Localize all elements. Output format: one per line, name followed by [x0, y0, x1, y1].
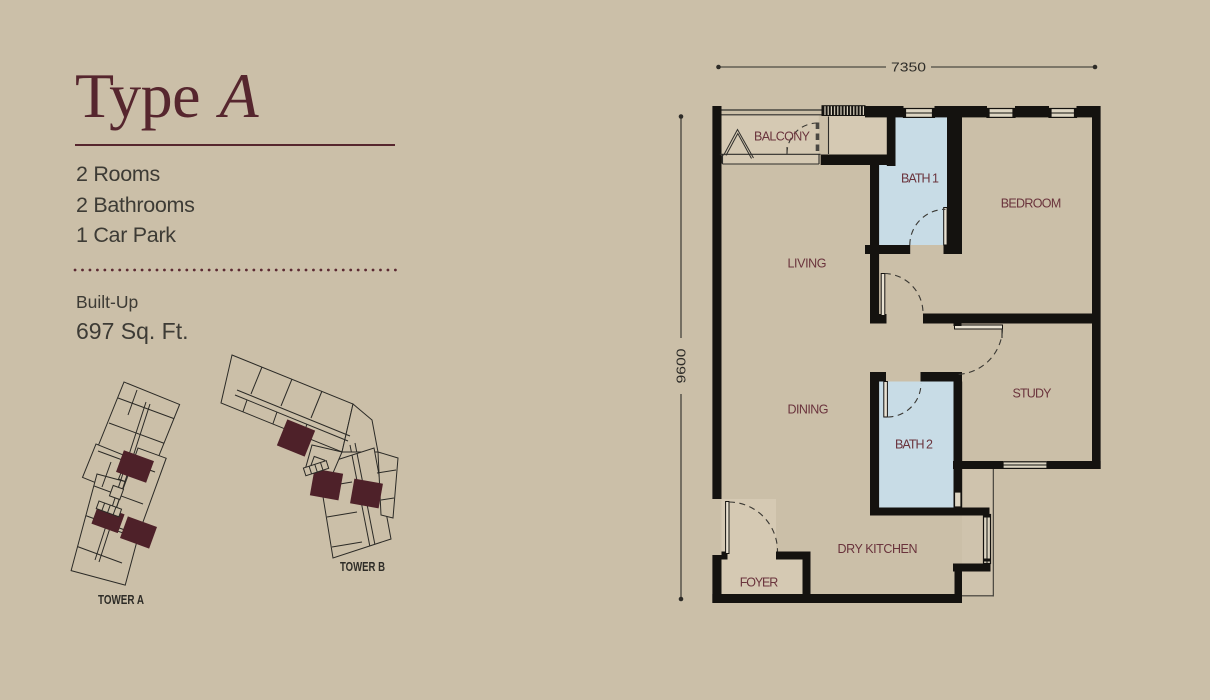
- svg-text:DRY KITCHEN: DRY KITCHEN: [838, 542, 918, 556]
- svg-text:FOYER: FOYER: [740, 576, 779, 590]
- svg-text:BATH 2: BATH 2: [895, 438, 933, 452]
- svg-text:BEDROOM: BEDROOM: [1001, 197, 1062, 211]
- svg-text:BATH 1: BATH 1: [901, 172, 939, 186]
- svg-text:STUDY: STUDY: [1013, 386, 1053, 400]
- svg-text:DINING: DINING: [788, 402, 829, 416]
- svg-text:TOWER A: TOWER A: [98, 592, 144, 607]
- svg-text:9600: 9600: [673, 349, 688, 384]
- svg-text:TOWER B: TOWER B: [340, 559, 385, 574]
- svg-text:BALCONY: BALCONY: [754, 130, 811, 144]
- svg-text:7350: 7350: [891, 59, 926, 74]
- svg-text:LIVING: LIVING: [788, 256, 827, 270]
